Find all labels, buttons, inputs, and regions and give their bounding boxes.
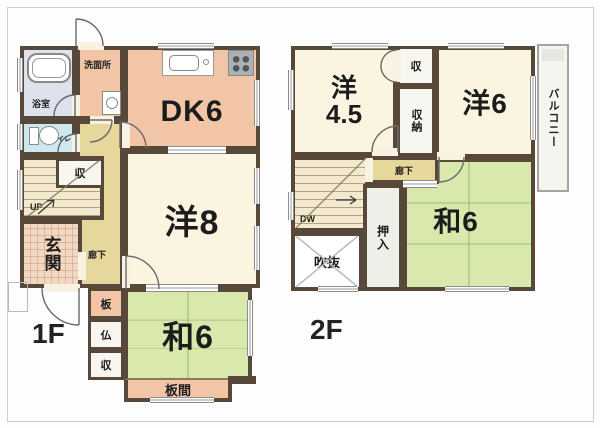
closet-altar-1f: 仏 — [88, 319, 124, 350]
void-label: 吹抜 — [313, 252, 341, 271]
floor2-label: 2F — [310, 314, 343, 346]
japanese6-1f-label: 和6 — [162, 312, 214, 358]
entrance-door-opening — [44, 284, 80, 292]
western8-label: 洋8 — [165, 195, 220, 244]
kitchen-sink-icon — [162, 50, 214, 76]
western6-label: 洋6 — [462, 82, 508, 122]
altar-label: 仏 — [101, 327, 112, 343]
void-fukinuke-2f: 吹抜 — [291, 232, 363, 291]
storage-1f-label: 収 — [101, 357, 112, 373]
hallway-1f-label: 廊下 — [88, 248, 106, 261]
board-label: 板 — [101, 296, 112, 312]
futon-closet-label: 押入 — [375, 225, 392, 251]
closet-stairs-label: 収 — [75, 165, 86, 181]
western6-door-opening — [437, 152, 465, 160]
window — [158, 43, 214, 49]
western45-door-opening — [372, 148, 398, 156]
balcony: バルコニー — [537, 44, 569, 192]
balcony-label: バルコニー — [545, 88, 561, 148]
closet-board-1f: 板 — [88, 288, 124, 319]
dk6-label: DK6 — [160, 95, 223, 129]
window — [17, 58, 23, 92]
closet-storage-1f: 収 — [88, 350, 124, 380]
storage-2f-label: 収納 — [408, 109, 424, 133]
washroom-hall-opening — [90, 116, 114, 124]
room-western6-2f: 洋6 — [435, 46, 535, 158]
window — [254, 226, 260, 270]
bath-door-opening — [72, 95, 80, 116]
floorplan-image: 廊下 浴室 洗面所 DK6 トイレ UP 収 玄関 洋8 板 仏 収 和6 板間… — [0, 0, 600, 428]
dk-western8-sliding-door — [168, 146, 226, 154]
window — [254, 80, 260, 126]
wall-stub-1f — [228, 376, 256, 384]
closet-2f-top: 収 — [397, 46, 435, 86]
window — [247, 300, 253, 356]
window — [17, 124, 23, 150]
western45-label: 洋 4.5 — [326, 75, 362, 127]
stairs-up-label: UP — [30, 202, 43, 212]
closet-2f-label: 収 — [411, 58, 422, 74]
balcony-ledge — [542, 49, 564, 61]
western45-line2: 4.5 — [326, 99, 362, 129]
window — [445, 286, 509, 292]
room-japanese6-1f: 和6 — [124, 288, 252, 380]
storage-2f: 収納 — [397, 86, 435, 156]
entrance-label: 玄関 — [39, 236, 64, 272]
hall-western8-opening — [122, 256, 130, 288]
window — [318, 286, 358, 292]
boardfloor-label: 板間 — [165, 380, 191, 399]
stairs-2f: DW — [291, 156, 369, 232]
closet-stairs-1f: 収 — [56, 158, 104, 188]
window — [150, 397, 214, 403]
window — [530, 76, 536, 140]
stairs-hall-opening-2f — [365, 158, 373, 182]
japanese6-2f-sliding-door — [403, 180, 437, 188]
entrance-hall-opening — [78, 252, 86, 280]
floor1-label: 1F — [32, 318, 65, 350]
toilet-bowl-icon — [39, 126, 59, 145]
window — [288, 70, 294, 110]
window — [448, 43, 504, 49]
toilet-door-opening — [72, 134, 80, 152]
closet-door-opening-2f — [393, 50, 401, 82]
porch-step-outline — [8, 282, 28, 312]
washroom-label: 洗面所 — [84, 58, 111, 71]
western8-japanese6-sliding-door — [146, 284, 218, 292]
room-entrance-1f: 玄関 — [20, 220, 82, 288]
room-western45-2f: 洋 4.5 — [291, 46, 397, 156]
washbasin-icon — [102, 91, 121, 115]
toilet-icon — [29, 127, 39, 145]
hallway-2f-label: 廊下 — [395, 164, 413, 177]
window — [288, 192, 294, 220]
bath-label: 浴室 — [32, 97, 50, 110]
stairs-down-label: DW — [300, 214, 315, 224]
japanese6-2f-label: 和6 — [433, 200, 479, 240]
bathtub-icon — [27, 53, 71, 83]
room-western8-1f: 洋8 — [124, 150, 260, 288]
window — [332, 43, 388, 49]
stove-icon — [228, 50, 254, 76]
backdoor-opening — [78, 42, 104, 50]
window — [254, 168, 260, 204]
hall-dk-opening — [122, 122, 130, 148]
futon-closet-2f: 押入 — [363, 184, 403, 291]
window — [17, 170, 23, 210]
